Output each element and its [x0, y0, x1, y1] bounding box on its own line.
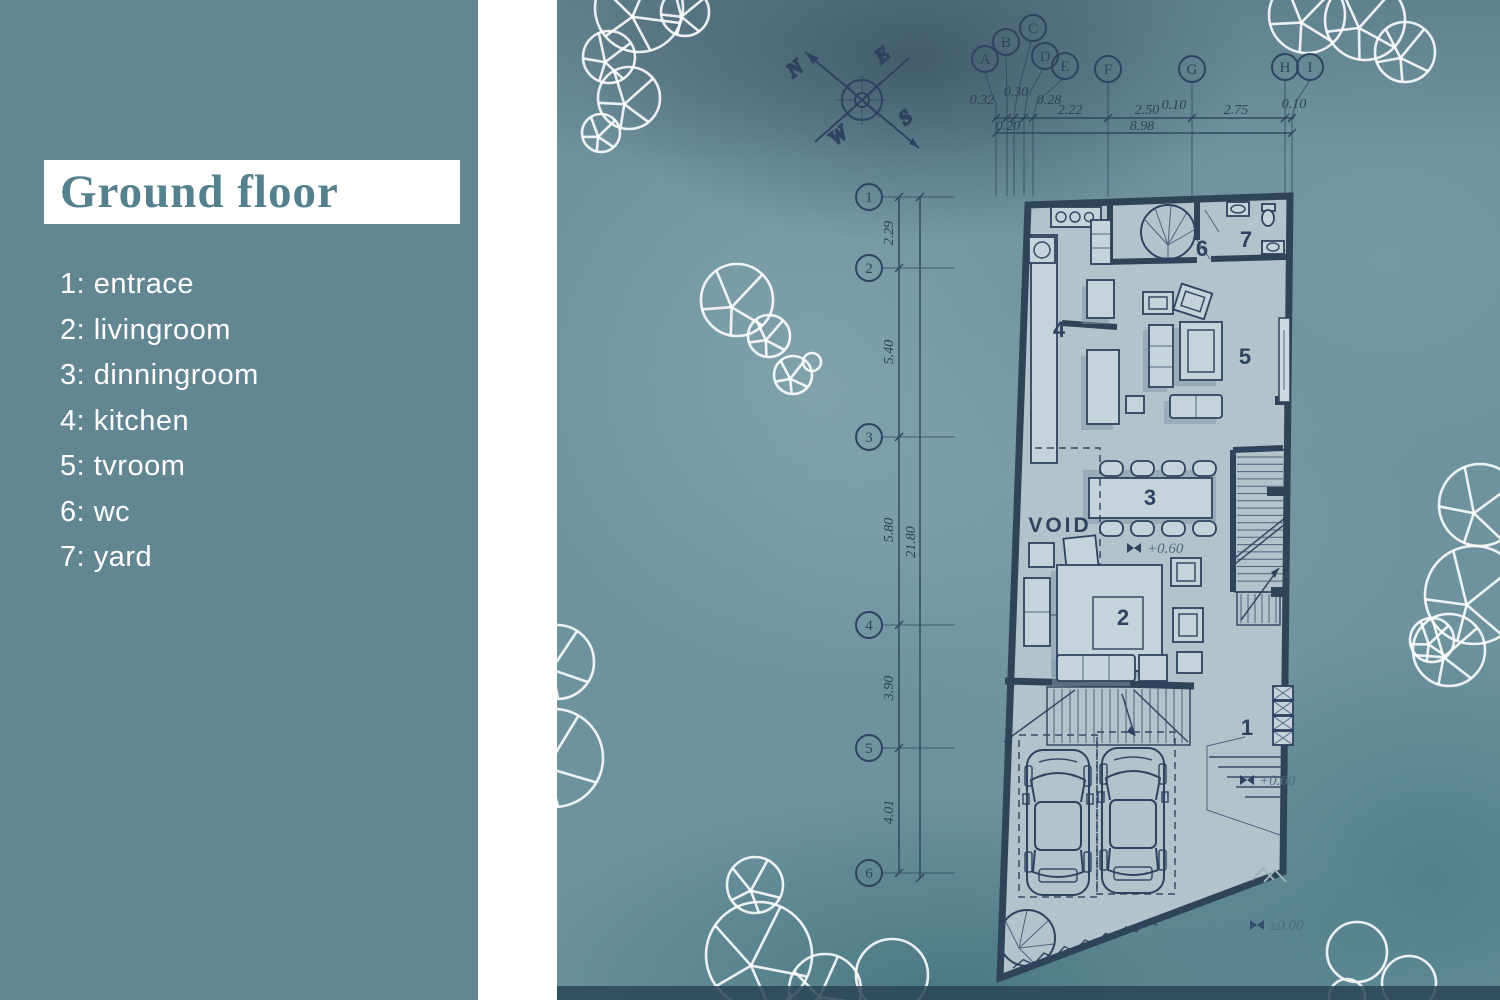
- grid-bubble-label: H: [1280, 60, 1291, 76]
- legend-item: 2: livingroom: [60, 308, 259, 354]
- top-dimension-grid: A B C D E F G H I 0.32 0.30 0.28 0.20 2.…: [970, 15, 1323, 196]
- dim-label: 0.32: [970, 93, 995, 108]
- dim-total-label: 21.80: [904, 526, 919, 558]
- room-label-yard: 7: [1240, 227, 1252, 252]
- legend-item: 3: dinningroom: [60, 353, 259, 399]
- dim-label: 0.10: [1282, 97, 1307, 112]
- compass-rose: N E S W: [782, 42, 919, 150]
- grid-bubble-label: 3: [865, 430, 873, 446]
- compass-w: W: [825, 121, 854, 150]
- grid-bubble-label: D: [1040, 49, 1051, 65]
- blueprint-canvas: N E S W: [557, 0, 1500, 1000]
- void-label: VOID: [1028, 514, 1091, 537]
- svg-text:+0.60: +0.60: [1259, 773, 1296, 789]
- dim-label: 2.50: [1135, 103, 1160, 118]
- floor-plan: 4 6 7 5 3 2 1 VOID +0.60 +0.60: [999, 196, 1296, 978]
- dim-total-label: 8.98: [1130, 119, 1155, 134]
- grid-bubble-label: 5: [865, 741, 873, 757]
- svg-text:±0.00: ±0.00: [1269, 918, 1304, 934]
- left-dimension-grid: 1 2 3 4 5 6 2.29 5.40 5.80 3.90 4.01 21.…: [856, 184, 955, 886]
- grid-bubble-label: E: [1060, 59, 1069, 75]
- room-label-wc: 6: [1196, 236, 1208, 261]
- svg-text:+0.60: +0.60: [1147, 541, 1184, 557]
- room-label-livingroom: 2: [1117, 605, 1129, 630]
- dim-label: 2.29: [882, 221, 897, 246]
- compass-s: S: [895, 106, 917, 130]
- room-label-entrance: 1: [1241, 715, 1253, 740]
- legend-item: 5: tvroom: [60, 444, 259, 490]
- floorplan-drawing: N E S W: [557, 0, 1500, 1000]
- room-label-tvroom: 5: [1239, 344, 1251, 369]
- grid-bubble-label: 4: [865, 618, 873, 634]
- legend-item: 6: wc: [60, 490, 259, 536]
- shaft-boxes: [1273, 686, 1293, 745]
- floorplan-presentation: Ground floor 1: entrace 2: livingroom 3:…: [0, 0, 1500, 1000]
- dim-label: 5.40: [882, 340, 897, 365]
- grid-bubble-label: F: [1104, 62, 1112, 78]
- compass-e: E: [870, 42, 895, 68]
- info-panel: Ground floor 1: entrace 2: livingroom 3:…: [0, 0, 478, 1000]
- grid-bubble-label: B: [1001, 35, 1011, 51]
- room-legend: 1: entrace 2: livingroom 3: dinningroom …: [60, 262, 259, 581]
- dim-label: 0.30: [1004, 85, 1029, 100]
- dim-label: 3.90: [882, 676, 897, 702]
- dim-label: 4.01: [882, 800, 897, 825]
- legend-item: 7: yard: [60, 535, 259, 581]
- grid-bubble-label: 6: [865, 866, 873, 882]
- dim-label: 0.20: [996, 119, 1021, 134]
- grid-bubble-label: I: [1308, 60, 1313, 76]
- room-label-dinningroom: 3: [1144, 485, 1156, 510]
- title-band: Ground floor: [44, 160, 460, 224]
- dim-label: 0.10: [1162, 98, 1187, 113]
- grid-bubble-label: 1: [865, 190, 873, 206]
- room-label-kitchen: 4: [1053, 317, 1066, 342]
- level-marker-ground: ±0.00: [1250, 918, 1304, 934]
- compass-n: N: [782, 55, 809, 83]
- grid-bubble-label: A: [980, 52, 991, 68]
- dim-label: 5.80: [882, 518, 897, 543]
- bottom-band: [557, 986, 1500, 1000]
- dim-label: 2.22: [1058, 103, 1083, 118]
- dim-label: 2.75: [1224, 103, 1249, 118]
- grid-bubble-label: G: [1187, 62, 1198, 78]
- legend-item: 1: entrace: [60, 262, 259, 308]
- legend-item: 4: kitchen: [60, 399, 259, 445]
- grid-bubble-label: 2: [865, 261, 873, 277]
- page-title: Ground floor: [44, 160, 460, 224]
- grid-bubble-label: C: [1028, 21, 1038, 37]
